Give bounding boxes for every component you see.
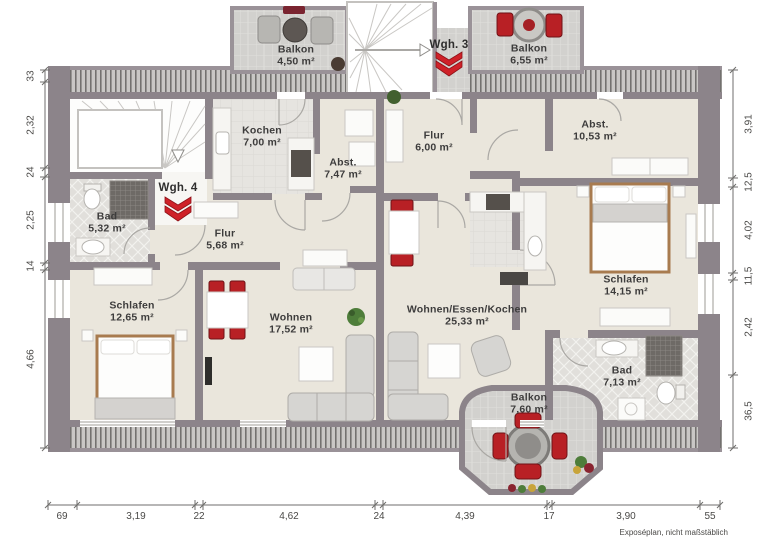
plant [387,90,401,104]
floor-plan-drawing [0,0,768,560]
tv [205,357,212,385]
room-label-flur3: Flur 6,00 m² [415,130,453,155]
dim-bottom-3: 4,62 [279,511,298,522]
dim-left-2: 24 [26,166,37,177]
wardrobe [386,110,403,162]
dim-bottom-5: 4,39 [455,511,474,522]
dim-left-3: 2,25 [26,210,37,229]
room-label-flur4: Flur 5,68 m² [206,228,244,253]
dim-right-0: 3,91 [744,114,755,133]
dim-bottom-7: 3,90 [616,511,635,522]
grill [283,6,305,14]
dim-left-5: 4,66 [26,349,37,368]
storage-box [345,110,373,136]
hall-console [194,202,238,218]
room-label-balkon-tr: Balkon 6,55 m² [510,43,548,68]
room-label-bad3: Bad 7,13 m² [603,365,641,390]
room-label-wohnen4: Wohnen 17,52 m² [269,312,313,337]
floor-plan: Balkon 4,50 m² Wgh. 3 Balkon 6,55 m² Koc… [0,0,768,560]
dim-right-1: 12,5 [744,172,755,191]
room-label-balkon-tl: Balkon 4,50 m² [277,44,315,69]
unit-label-wgh4: Wgh. 4 [159,182,198,194]
plant [331,57,345,71]
dim-left-1: 2,32 [26,115,37,134]
unit-label-wgh3: Wgh. 3 [430,39,469,51]
room-label-schlafen3: Schlafen 14,15 m² [603,274,648,299]
room-label-bad4: Bad 5,32 m² [88,211,126,236]
plant [347,308,365,326]
room-label-wek3: Wohnen/Essen/Kochen 25,33 m² [407,304,527,329]
dim-right-4: 2,42 [744,317,755,336]
dim-bottom-6: 17 [543,511,554,522]
dim-bottom-0: 69 [56,511,67,522]
dim-right-2: 4,02 [744,220,755,239]
dim-bottom-2: 22 [193,511,204,522]
stairwell-top [347,2,433,97]
dim-right-3: 11,5 [744,267,755,286]
dim-right-5: 36,5 [744,401,755,420]
room-label-kochen: Kochen 7,00 m² [242,125,282,150]
room-label-balkon-b: Balkon 7,60 m² [510,392,548,417]
room-label-schlafen4: Schlafen 12,65 m² [109,300,154,325]
room-label-abst4: Abst. 7,47 m² [324,157,362,182]
dim-left-0: 33 [26,70,37,81]
dim-left-4: 14 [26,260,37,271]
dim-bottom-4: 24 [373,511,384,522]
disclaimer-text: Exposéplan, nicht maßstäblich [620,528,729,537]
hall-sideboard [303,250,347,266]
dim-bottom-1: 3,19 [126,511,145,522]
dim-bottom-8: 55 [704,511,715,522]
room-label-abst3: Abst. 10,53 m² [573,119,617,144]
